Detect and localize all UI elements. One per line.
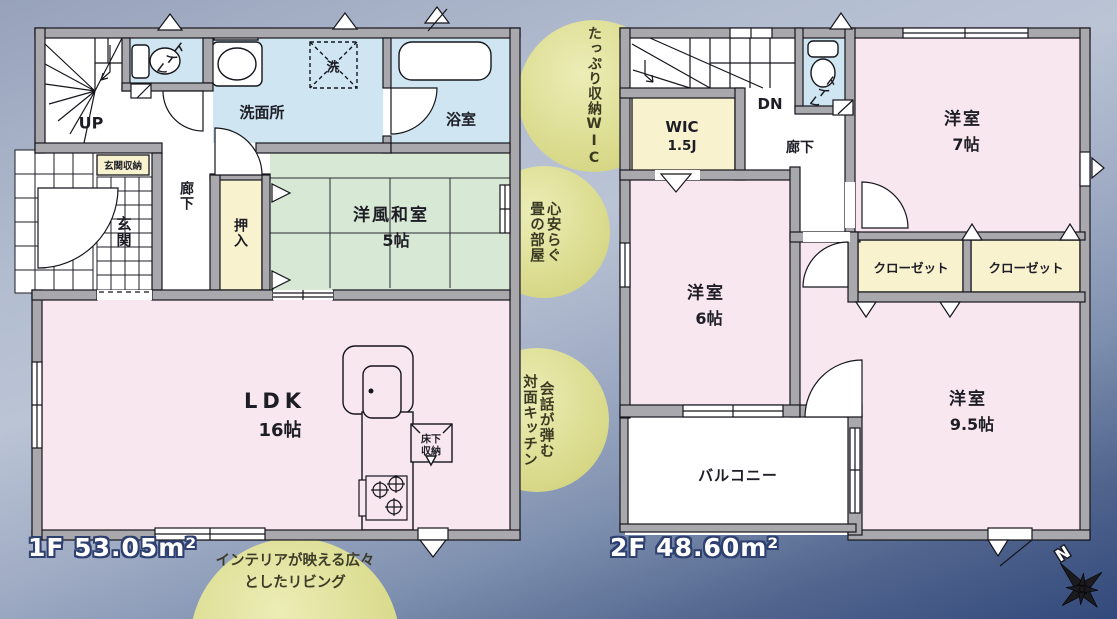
- label-tatami-size: 5帖: [382, 227, 409, 251]
- floorplan-canvas: たっぷり収納WIC 心安らぐ 畳の部屋 会話が弾む 対面キッチン インテリアが映…: [0, 0, 1117, 619]
- label-entrance-storage: 玄関収納: [104, 158, 142, 172]
- label-closet-right: クローゼット: [988, 258, 1063, 277]
- label-balcony: バルコニー: [698, 465, 778, 486]
- balcony-window: [683, 405, 783, 417]
- kitchen-back-door: [418, 528, 448, 557]
- vent-toilet-2f: [830, 13, 852, 29]
- ldk-left-window: [32, 362, 42, 448]
- bedroom6-left-window: [620, 243, 630, 287]
- label-oshiire: 押入: [230, 218, 250, 248]
- toilet-door-1f: [131, 84, 151, 98]
- label-tatami-name: 洋風和室: [353, 201, 429, 226]
- tatami-window: [500, 185, 510, 233]
- label-bedroom6-size: 6帖: [695, 305, 722, 329]
- vent-toilet-1f: [158, 14, 182, 30]
- label-washroom: 洗面所: [239, 102, 284, 123]
- toilet-door-2f: [833, 100, 853, 115]
- label-wic-name: WIC: [665, 118, 698, 136]
- label-entrance: 玄関: [114, 216, 135, 248]
- label-ldk-size: 16帖: [258, 416, 301, 442]
- floor1-area-label: 1F 53.05m²: [28, 533, 197, 562]
- bathtub-fixture: [399, 42, 491, 80]
- bedroom95-door-gap: [803, 232, 850, 242]
- floorplan-svg: N: [0, 0, 1117, 619]
- entrance-step-opening: [97, 290, 152, 300]
- compass: N: [1040, 542, 1117, 619]
- label-ldk-name: LDK: [244, 389, 306, 413]
- stairs-top-window: [730, 28, 772, 38]
- label-underfloor-2: 収納: [421, 443, 441, 458]
- vent-washroom: [333, 13, 357, 29]
- label-wic-size: 1.5J: [668, 138, 697, 154]
- label-stairs-dn: DN: [757, 95, 782, 113]
- tatami-ldk-opening: [273, 290, 333, 300]
- stove-burners: [359, 475, 407, 520]
- bedroom7-top-window: [903, 28, 1028, 38]
- bedroom95-bottom-door: [988, 528, 1032, 566]
- bedroom7-side-marker: [1080, 152, 1104, 186]
- label-bedroom6-name: 洋室: [687, 279, 725, 304]
- label-bedroom7-name: 洋室: [944, 105, 982, 130]
- label-hallway-2f: 廊下: [786, 137, 814, 157]
- label-closet-left: クローゼット: [873, 258, 948, 277]
- floor2-area-label: 2F 48.60m²: [610, 533, 779, 562]
- label-bedroom95-size: 9.5帖: [950, 411, 994, 435]
- bedroom7-door-gap: [845, 182, 855, 228]
- label-bath: 浴室: [446, 109, 476, 130]
- balcony-side-window: [850, 428, 860, 513]
- vent-bath: [425, 7, 449, 31]
- label-laundry: 洗: [326, 57, 339, 76]
- compass-north-label: N: [1052, 542, 1073, 565]
- label-bedroom95-name: 洋室: [949, 385, 987, 410]
- washbasin-fixture: [212, 31, 262, 86]
- label-bedroom7-size: 7帖: [952, 131, 979, 155]
- label-stairs-up: UP: [79, 114, 104, 133]
- label-hallway-1f: 廊下: [176, 181, 196, 211]
